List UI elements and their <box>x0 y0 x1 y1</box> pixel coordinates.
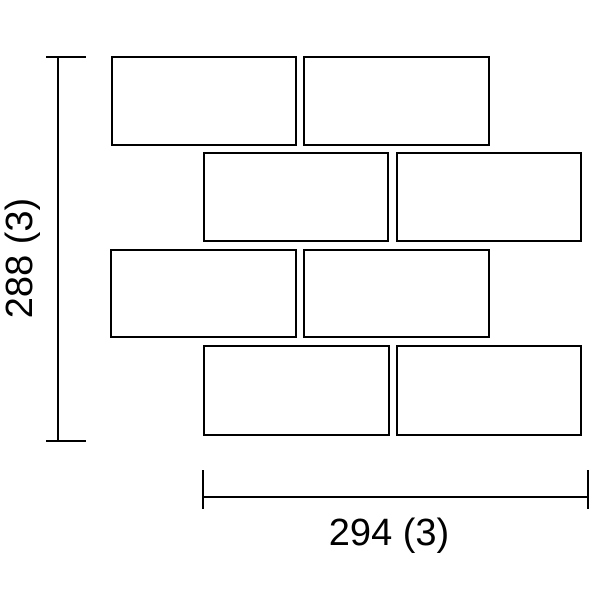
brick <box>203 152 389 242</box>
brick <box>303 56 490 146</box>
horizontal-dimension-right-tick <box>587 470 589 509</box>
diagram-canvas: 288 (3) 294 (3) <box>0 0 600 600</box>
height-dimension-label: 288 (3) <box>1 198 39 318</box>
horizontal-dimension-line <box>202 496 588 498</box>
horizontal-dimension-left-tick <box>202 470 204 509</box>
vertical-dimension-bottom-tick <box>46 440 86 442</box>
vertical-dimension-top-tick <box>46 56 86 58</box>
brick <box>303 249 490 338</box>
brick <box>396 152 582 242</box>
width-dimension-label: 294 (3) <box>329 514 449 552</box>
vertical-dimension-line <box>57 56 59 442</box>
brick <box>110 249 297 338</box>
brick <box>111 56 297 146</box>
brick <box>203 345 390 436</box>
brick <box>396 345 582 436</box>
